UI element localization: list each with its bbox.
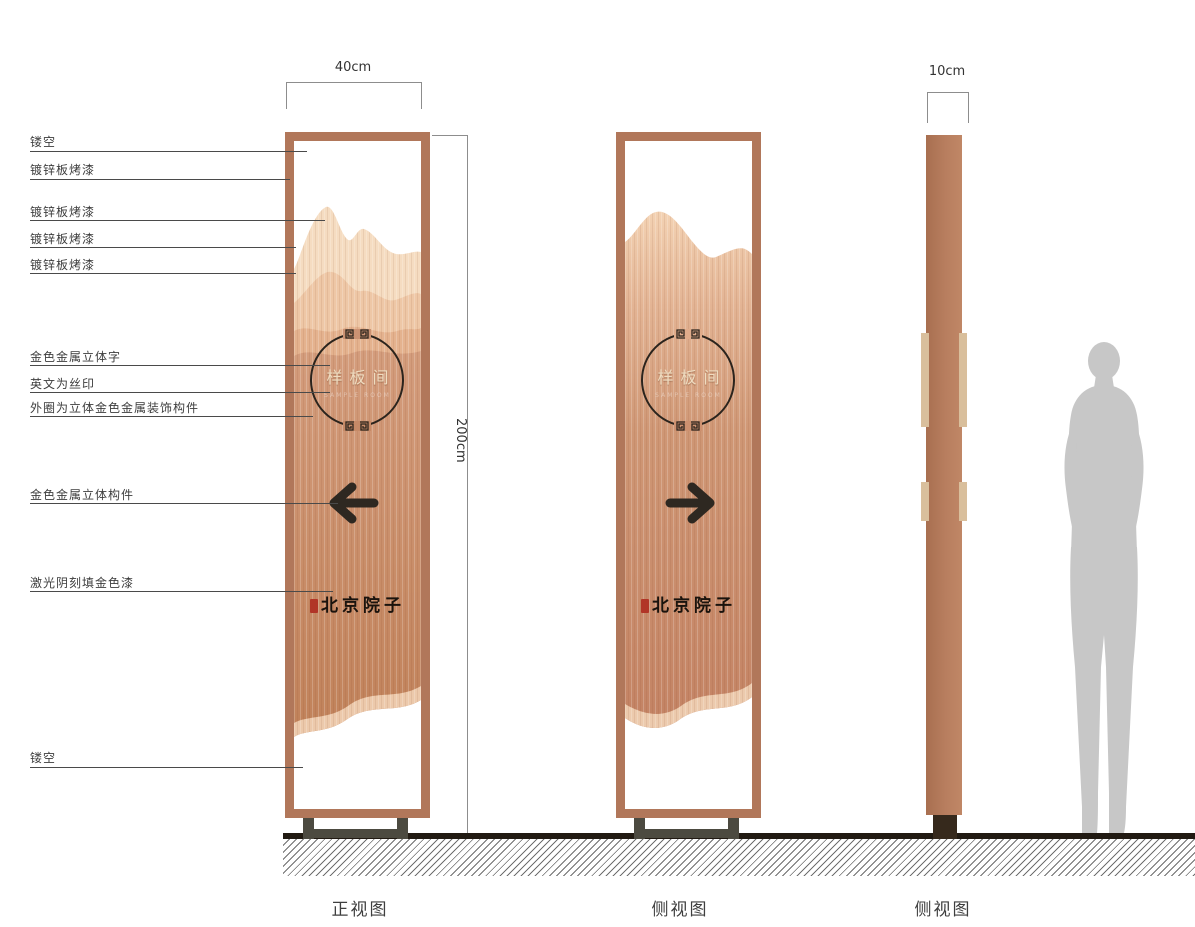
callout-leader-line <box>30 220 325 221</box>
profile-protrusion-strip <box>959 482 967 521</box>
brand-calligraphy: 北京院子 <box>294 591 421 616</box>
sign-front-view: 样板间 SAMPLE ROOM 北京院子 <box>285 132 430 818</box>
callout-leader-line <box>30 247 296 248</box>
callout-gold-3d-component: 金色金属立体构件 <box>30 486 134 503</box>
sign-front-base-bar <box>303 829 408 838</box>
callout-galvanized-4: 镀锌板烤漆 <box>30 256 95 273</box>
sign-side-base-bar <box>634 829 739 838</box>
callout-galvanized-3: 镀锌板烤漆 <box>30 230 95 247</box>
plaque-title: 样板间 <box>625 369 752 387</box>
dimension-width-bracket <box>286 82 422 109</box>
callout-hollow-bottom: 镂空 <box>30 749 56 766</box>
sign-side-view: 样板间 SAMPLE ROOM 北京院子 <box>616 132 761 818</box>
callout-leader-line <box>30 179 290 180</box>
callout-leader-line <box>30 416 313 417</box>
callout-outer-ring-gold: 外圈为立体金色金属装饰构件 <box>30 399 199 416</box>
seal-stamp-icon <box>310 599 318 613</box>
profile-protrusion-strip <box>959 333 967 427</box>
callout-leader-line <box>30 767 303 768</box>
callout-leader-line <box>30 392 330 393</box>
callout-laser-engrave-gold: 激光阴刻填金色漆 <box>30 574 134 591</box>
sign-profile-bar <box>926 135 962 815</box>
caption-side-view-1: 侧视图 <box>620 895 740 920</box>
callout-leader-line <box>30 503 338 504</box>
callout-english-silkscreen: 英文为丝印 <box>30 375 95 392</box>
brand-calligraphy: 北京院子 <box>625 591 752 616</box>
dimension-depth-label: 10cm <box>927 64 967 79</box>
dimension-height-label: 200cm <box>453 418 468 463</box>
callout-galvanized-1: 镀锌板烤漆 <box>30 161 95 178</box>
plaque-subtitle: SAMPLE ROOM <box>294 392 421 399</box>
sign-front-artwork <box>294 141 421 809</box>
dimension-depth-bracket <box>927 92 969 123</box>
caption-front-view: 正视图 <box>300 895 420 920</box>
seal-stamp-icon <box>641 599 649 613</box>
design-drawing-canvas: 镂空 镀锌板烤漆 镀锌板烤漆 镀锌板烤漆 镀锌板烤漆 金色金属立体字 英文为丝印… <box>0 0 1195 927</box>
sign-side-artwork <box>625 141 752 809</box>
callout-leader-line <box>30 273 296 274</box>
callout-galvanized-2: 镀锌板烤漆 <box>30 203 95 220</box>
brand-text: 北京院子 <box>652 596 736 616</box>
callout-gold-3d-letters: 金色金属立体字 <box>30 348 121 365</box>
profile-protrusion-strip <box>921 333 929 427</box>
ground-hatch <box>283 839 1195 876</box>
plaque-subtitle: SAMPLE ROOM <box>625 392 752 399</box>
brand-text: 北京院子 <box>321 596 405 616</box>
dimension-height-tick <box>432 135 467 136</box>
dimension-width-label: 40cm <box>286 60 420 75</box>
caption-side-view-2: 侧视图 <box>883 895 1003 920</box>
plaque-title: 样板间 <box>294 369 421 387</box>
sign-profile-foot <box>933 812 957 839</box>
callout-leader-line <box>30 365 330 366</box>
profile-protrusion-strip <box>921 482 929 521</box>
human-scale-silhouette <box>1040 335 1170 840</box>
callout-leader-line <box>30 591 333 592</box>
callout-hollow-top: 镂空 <box>30 133 56 150</box>
dimension-height-line <box>467 135 468 833</box>
callout-leader-line <box>30 151 307 152</box>
